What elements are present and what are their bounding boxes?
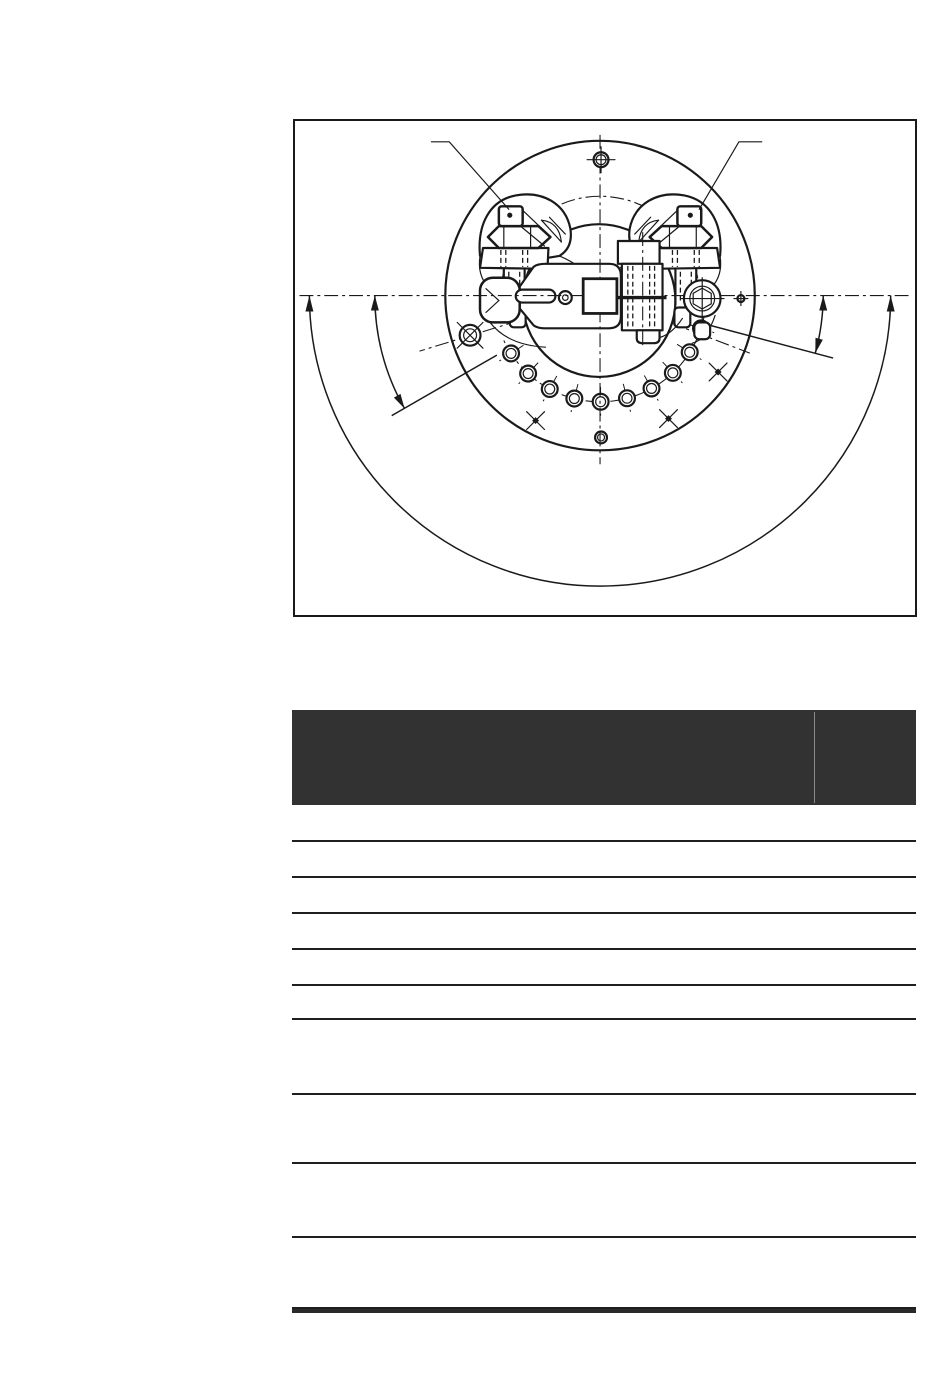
- table-row: [292, 878, 916, 914]
- spec-table-header: [292, 710, 916, 805]
- figure-frame: [293, 119, 917, 617]
- table-row: [292, 1095, 916, 1164]
- table-row: [292, 1238, 916, 1309]
- header-cell-main: [292, 710, 814, 805]
- table-bottom-rule: [292, 1309, 916, 1313]
- header-column-divider: [814, 712, 815, 803]
- table-row: [292, 986, 916, 1020]
- technical-drawing: [295, 121, 915, 615]
- spec-table: [292, 710, 916, 1313]
- table-row: [292, 805, 916, 842]
- table-row: [292, 914, 916, 950]
- reference-hole-bottom: [595, 431, 607, 443]
- center-square: [583, 279, 617, 314]
- table-row: [292, 842, 916, 878]
- table-body: [292, 805, 916, 1309]
- table-row: [292, 1020, 916, 1095]
- table-row: [292, 950, 916, 986]
- reference-hole-left: [457, 322, 483, 348]
- table-row: [292, 1164, 916, 1238]
- header-cell-right: [814, 710, 916, 805]
